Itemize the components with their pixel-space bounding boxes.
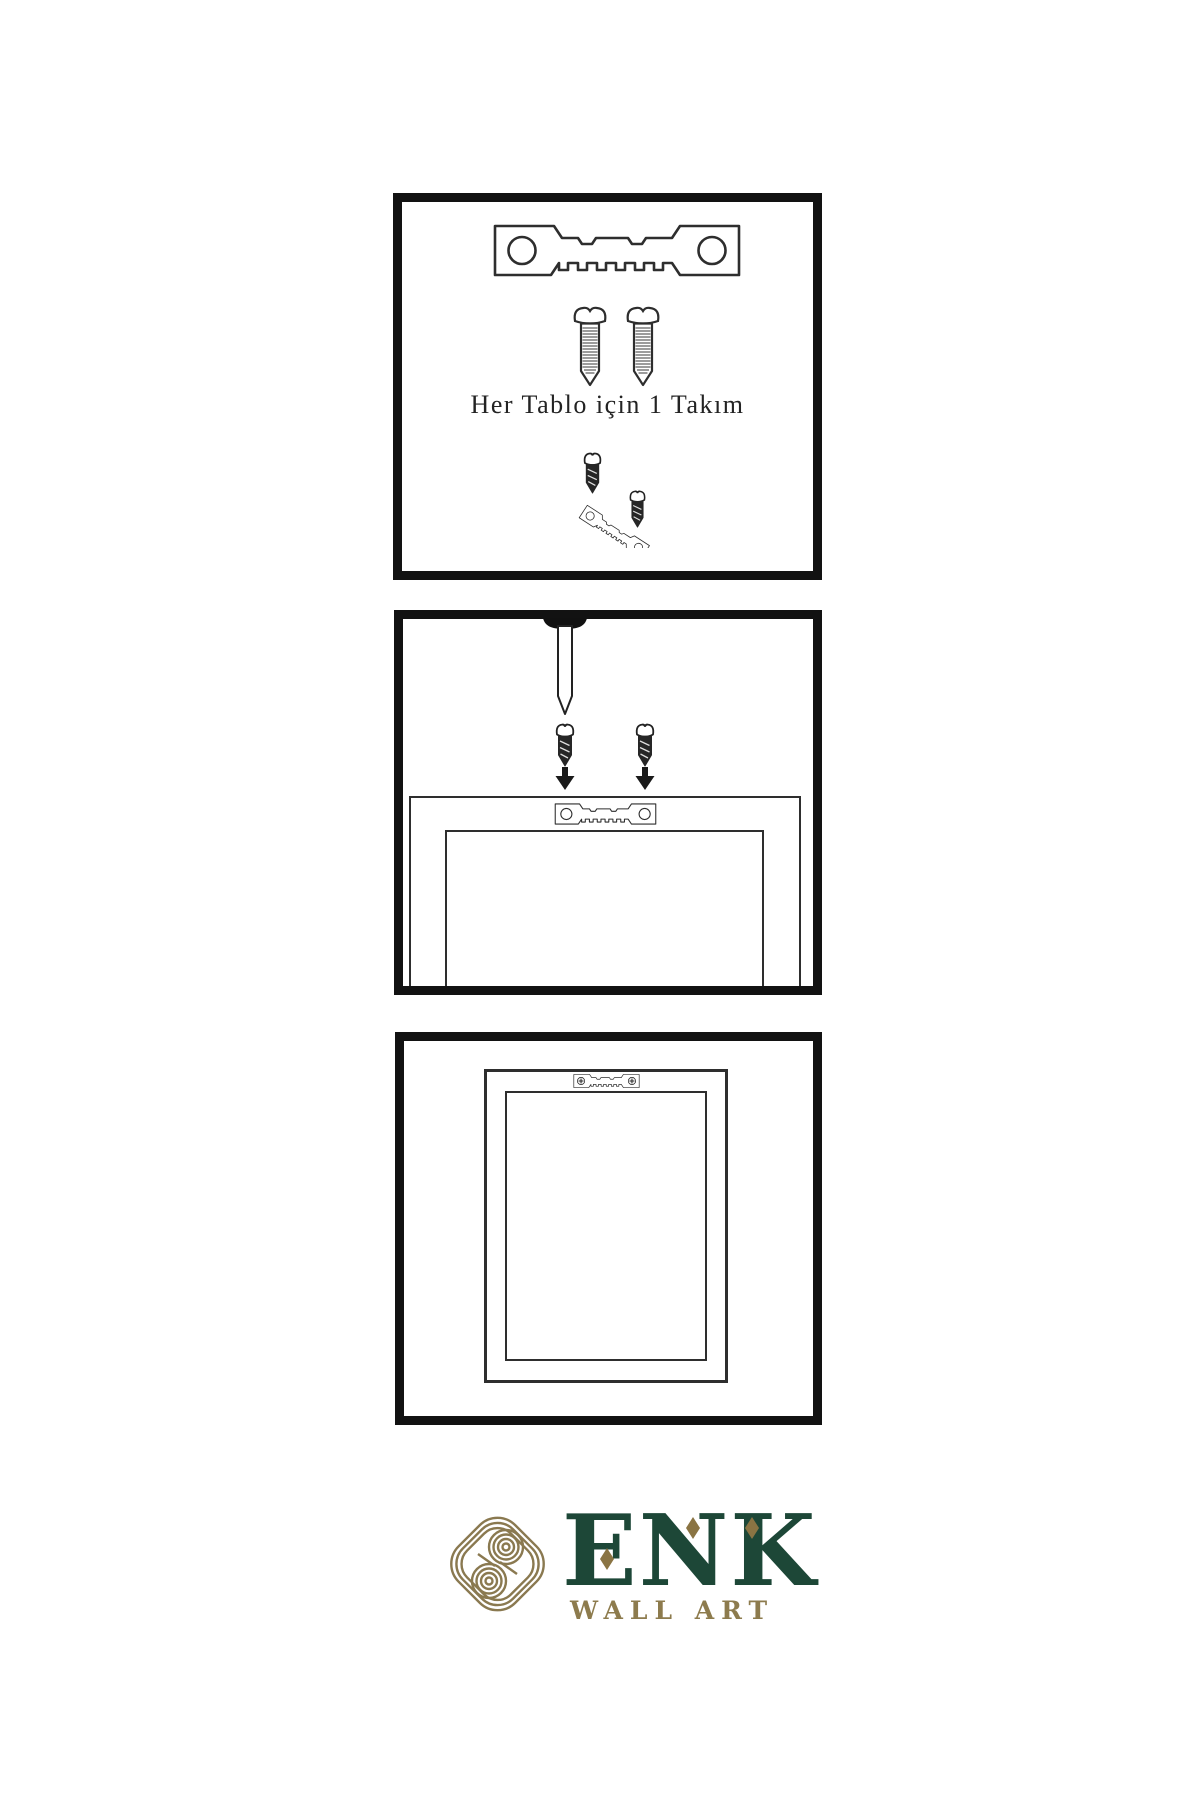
- nail-icon: [542, 618, 588, 718]
- arrow-down-icon: [635, 767, 655, 790]
- screw-icon: [625, 305, 661, 387]
- install-demo-icon: [578, 448, 656, 548]
- step-1-panel: Her Tablo için 1 Takım: [393, 193, 822, 580]
- instruction-sheet: Her Tablo için 1 Takım: [0, 0, 1200, 1800]
- frame-back-inner: [445, 830, 764, 986]
- step-2-panel: [394, 610, 822, 995]
- sawtooth-hanger-icon: [554, 801, 657, 827]
- dark-screw-icon: [634, 722, 656, 768]
- dark-screw-icon: [554, 722, 576, 768]
- brand-subtitle: WALL ART: [570, 1596, 774, 1625]
- arrow-down-icon: [555, 767, 575, 790]
- step-3-panel: [395, 1032, 822, 1425]
- sawtooth-hanger-icon: [492, 223, 742, 278]
- kit-caption: Her Tablo için 1 Takım: [402, 390, 813, 420]
- brand-name: ENK: [562, 1497, 817, 1607]
- brand-logo: ENK WALL ART: [430, 1495, 810, 1645]
- hung-frame-inner: [505, 1091, 707, 1361]
- mounted-sawtooth-hanger-icon: [573, 1072, 640, 1090]
- knot-icon: [440, 1503, 555, 1625]
- screw-icon: [572, 305, 608, 387]
